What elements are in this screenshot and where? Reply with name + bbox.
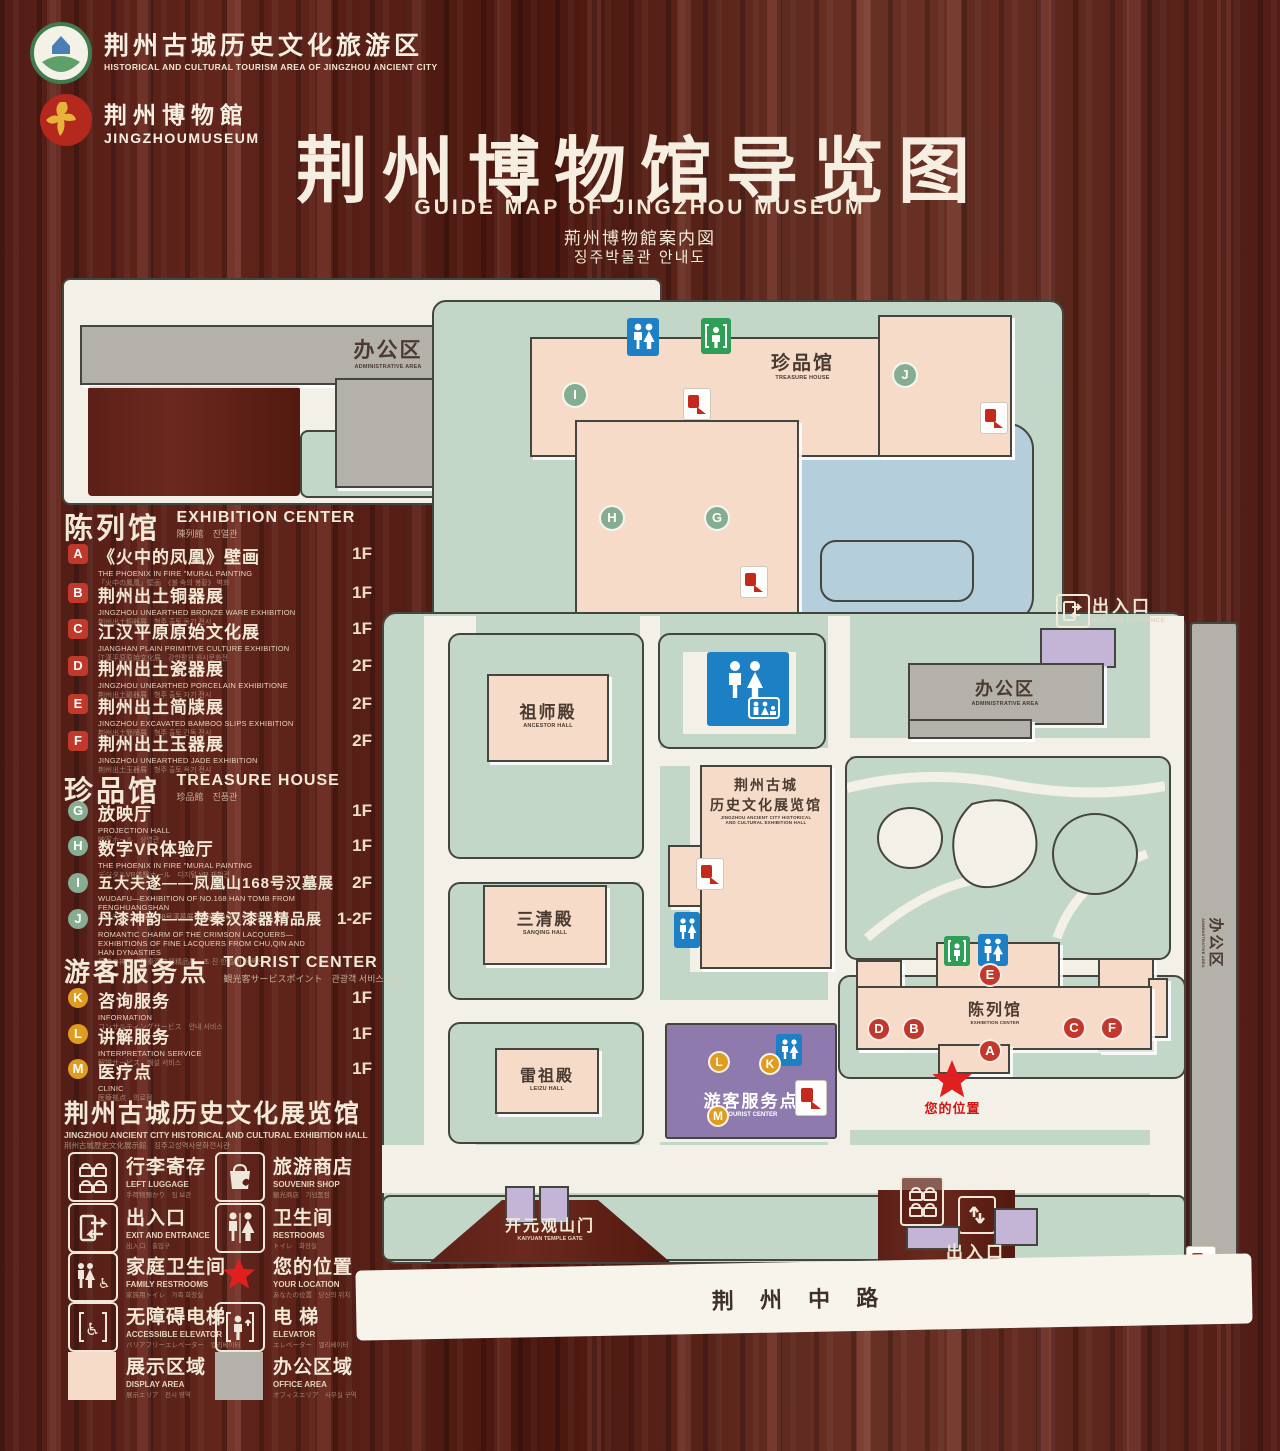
legend-icon-left-luggage: 行李寄存 LEFT LUGGAGE 手荷物預かり 짐 보관 — [68, 1152, 218, 1202]
item-title: 丹漆神韵——楚秦汉漆器精品展 — [98, 908, 320, 929]
elevator-icon — [944, 936, 970, 966]
legend-item-l: L 讲解服务 INTERPRETATION SERVICE 解説サービス 해설 … — [64, 1023, 374, 1061]
label-gate: 开元观山门 KAIYUAN TEMPLE GATE — [470, 1212, 630, 1242]
family-restrooms-icon: ♿ — [68, 1252, 118, 1302]
item-title: 放映厅 — [98, 800, 320, 825]
souvenir-shop-icon — [215, 1152, 265, 1202]
tourism-area-name-en: HISTORICAL AND CULTURAL TOURISM AREA OF … — [104, 62, 438, 72]
item-floor: 2F — [322, 873, 372, 893]
icon-label-zh: 旅游商店 — [273, 1152, 368, 1179]
legend-hall-note: 荆州古城历史文化展览馆 JINGZHOU ANCIENT CITY HISTOR… — [64, 1094, 384, 1151]
building-ancestor-hall: 祖师殿 ANCESTOR HALL — [487, 674, 609, 762]
legend-item-b: B 荆州出土铜器展 JINGZHOU UNEARTHED BRONZE WARE… — [64, 582, 374, 620]
icon-label-sub: 家族用トイレ 가족 화장실 — [126, 1289, 221, 1299]
icon-label-zh: 卫生间 — [273, 1203, 368, 1230]
your-location-star-icon — [221, 1256, 257, 1292]
item-badge: A — [68, 544, 88, 564]
item-badge: G — [68, 801, 88, 821]
legend-icon-souvenir-shop: 旅游商店 SOUVENIR SHOP 観光商店 기념품점 — [215, 1152, 365, 1202]
label-admin-right-en: ADMINISTRATIVE AREA — [935, 701, 1075, 707]
display-area-swatch — [68, 1352, 116, 1400]
legend-item-d: D 荆州出土瓷器展 JINGZHOU UNEARTHED PORCELAIN E… — [64, 655, 374, 693]
item-title: 荆州出土铜器展 — [98, 582, 320, 607]
gate-building — [1040, 628, 1116, 668]
icon-label-en: YOUR LOCATION — [273, 1280, 368, 1289]
museum-emblem-icon — [38, 92, 94, 148]
your-location-star — [930, 1058, 974, 1100]
label-gate-en: KAIYUAN TEMPLE GATE — [470, 1236, 630, 1242]
item-en: JINGZHOU EXCAVATED BAMBOO SLIPS EXHIBITI… — [98, 719, 320, 728]
escalator-icon — [795, 1080, 827, 1116]
item-title: 咨询服务 — [98, 987, 320, 1012]
left-luggage-icon — [900, 1176, 944, 1226]
section-subtitle: 観光客サービスポイント 관광객 서비스 지점 — [223, 972, 402, 985]
item-floor: 2F — [322, 656, 372, 676]
section-title-en: TOURIST CENTER — [223, 954, 402, 972]
building-leizu-hall: 雷祖殿 LEIZU HALL — [495, 1048, 599, 1114]
museum-logo — [38, 92, 94, 148]
item-floor: 1F — [322, 544, 372, 564]
item-floor: 1F — [322, 801, 372, 821]
section-title-en: EXHIBITION CENTER — [176, 509, 355, 527]
map-badge-k: K — [759, 1053, 781, 1075]
icon-label-sub: トイレ 화장실 — [273, 1240, 368, 1250]
page-subtitle-en: GUIDE MAP OF JINGZHOU MUSEUM — [280, 196, 1000, 220]
office-area-swatch — [215, 1352, 263, 1400]
legend-item-h: H 数字VR体验厅 THE PHOENIX IN FIRE "MURAL PAI… — [64, 835, 374, 873]
map-badge-c: C — [1062, 1016, 1086, 1040]
icon-label-zh: 展示区域 — [126, 1352, 221, 1379]
restrooms-icon — [215, 1203, 265, 1253]
item-badge: D — [68, 656, 88, 676]
escalator-icon — [980, 402, 1008, 434]
icon-label-zh: 行李寄存 — [126, 1152, 221, 1179]
item-badge: J — [68, 909, 88, 929]
map-badge-m: M — [707, 1105, 729, 1127]
item-floor: 2F — [322, 694, 372, 714]
icon-label-zh: 无障碍电梯 — [126, 1302, 221, 1329]
icon-label-en: RESTROOMS — [273, 1231, 368, 1240]
icon-label-sub: 観光商店 기념품점 — [273, 1189, 368, 1199]
icon-label-en: OFFICE AREA — [273, 1380, 368, 1389]
exit-entrance-icon — [1056, 594, 1090, 628]
item-badge: B — [68, 583, 88, 603]
legend-item-m: M 医疗点 CLINIC 医療拠点 의료점 1F — [64, 1058, 374, 1096]
legend-item-c: C 江汉平原原始文化展 JIANGHAN PLAIN PRIMITIVE CUL… — [64, 618, 374, 656]
tourism-area-name: 荆州古城历史文化旅游区 — [104, 26, 438, 62]
map-badge-l: L — [708, 1051, 730, 1073]
path — [448, 858, 660, 882]
map-badge-j: J — [892, 362, 918, 388]
escalator-icon — [740, 566, 768, 598]
icon-label-en: FAMILY RESTROOMS — [126, 1280, 221, 1289]
legend-icon-your-location: 您的位置 YOUR LOCATION あなたの位置 당신의 위치 — [215, 1252, 365, 1302]
item-badge: H — [68, 836, 88, 856]
item-en: JINGZHOU UNEARTHED BRONZE WARE EXHIBITIO… — [98, 608, 320, 617]
legend-item-e: E 荆州出土简牍展 JINGZHOU EXCAVATED BAMBOO SLIP… — [64, 693, 374, 731]
label-ancestor-en: ANCESTOR HALL — [489, 723, 607, 729]
map-badge-f: F — [1100, 1016, 1124, 1040]
icon-label-sub: オフィスエリア 사무실 구역 — [273, 1389, 368, 1399]
label-exit-right: 出入口 EXIT AND ENTRANCE — [1092, 592, 1212, 624]
restroom-icon — [627, 318, 659, 356]
label-leizu-en: LEIZU HALL — [497, 1086, 597, 1092]
legend-section-exhibition: 陈列馆 EXHIBITION CENTER 陳列館 진열관 — [64, 505, 355, 547]
item-en: INFORMATION — [98, 1013, 320, 1022]
exit-entrance-icon — [958, 1196, 996, 1234]
hall-note-en: JINGZHOU ANCIENT CITY HISTORICAL AND CUL… — [64, 1130, 384, 1140]
label-your-location: 您的位置 — [905, 1098, 1000, 1117]
map-badge-h: H — [599, 505, 625, 531]
item-title: 讲解服务 — [98, 1023, 320, 1048]
item-badge: C — [68, 619, 88, 639]
label-excenter-zh: 陈列馆 — [940, 996, 1050, 1020]
item-badge: E — [68, 694, 88, 714]
page-subtitle-ko: 징주박물관 안내도 — [280, 246, 1000, 267]
label-hallc-en2: AND CULTURAL EXHIBITION HALL — [702, 820, 830, 825]
item-floor: 1F — [322, 1024, 372, 1044]
label-hallc-zh1: 荆州古城 — [702, 775, 830, 795]
label-admin-strip-zh: 办公区 — [1207, 917, 1224, 968]
legend-icon-accessible-elevator: ♿ 无障碍电梯 ACCESSIBLE ELEVATOR バリアフリーエレベーター… — [68, 1302, 218, 1352]
item-floor: 1F — [322, 836, 372, 856]
hall-note-sub: 荆州古城歴史文化展示館 징주고성역사문화전시관 — [64, 1140, 384, 1151]
map-badge-e: E — [978, 963, 1002, 987]
item-floor: 1F — [322, 619, 372, 639]
label-ancestor-zh: 祖师殿 — [489, 698, 607, 723]
label-admin-strip-en: ADMINISTRATIVE AREA — [1201, 863, 1206, 1023]
legend-icon-restrooms: 卫生间 RESTROOMS トイレ 화장실 — [215, 1203, 365, 1253]
icon-label-en: EXIT AND ENTRANCE — [126, 1231, 221, 1240]
legend-item-k: K 咨询服务 INFORMATION コンサルティングサービス 안내 서비스 1… — [64, 987, 374, 1025]
elevator-icon — [701, 318, 731, 354]
path — [845, 1072, 1175, 1130]
item-badge: M — [68, 1059, 88, 1079]
escalator-icon — [683, 388, 711, 420]
icon-label-sub: 展示エリア 전시 영역 — [126, 1389, 221, 1399]
legend-item-j: J 丹漆神韵——楚秦汉漆器精品展 ROMANTIC CHARM OF THE C… — [64, 908, 374, 954]
item-title: 数字VR体验厅 — [98, 835, 320, 860]
building-sanqing-hall: 三清殿 SANQING HALL — [483, 885, 607, 965]
svg-text:♿: ♿ — [98, 1275, 111, 1291]
icon-label-sub: あなたの位置 당신의 위치 — [273, 1289, 368, 1299]
icon-label-en: ELEVATOR — [273, 1330, 368, 1339]
item-floor: 1F — [322, 988, 372, 1008]
icon-label-sub: 出入口 출입구 — [126, 1240, 221, 1250]
item-badge: F — [68, 731, 88, 751]
legend-item-i: I 五大夫遂——凤凰山168号汉墓展 WUDAFU—EXHIBITION OF … — [64, 872, 374, 910]
item-title: 五大夫遂——凤凰山168号汉墓展 — [98, 872, 320, 893]
accessible-elevator-icon: ♿ — [68, 1302, 118, 1352]
icon-label-en: ACCESSIBLE ELEVATOR — [126, 1330, 221, 1339]
legend-icon-elevator: 电 梯 ELEVATOR エレベーター 엘리베이터 — [215, 1302, 365, 1352]
item-floor: 1-2F — [322, 909, 372, 929]
label-exit-right-zh: 出入口 — [1092, 592, 1212, 617]
label-admin-right-zh: 办公区 — [935, 675, 1075, 701]
label-leizu-zh: 雷祖殿 — [497, 1062, 597, 1086]
label-admin-right: 办公区 ADMINISTRATIVE AREA — [935, 675, 1075, 707]
item-badge: K — [68, 988, 88, 1008]
item-en: JINGZHOU UNEARTHED PORCELAIN EXHIBITIONE — [98, 681, 320, 690]
map-badge-b: B — [902, 1017, 926, 1041]
map-badge-a: A — [978, 1039, 1002, 1063]
icon-label-en: LEFT LUGGAGE — [126, 1180, 221, 1189]
section-subtitle: 陳列館 진열관 — [176, 527, 355, 540]
escalator-icon — [696, 858, 724, 890]
label-road: 荆 州 中 路 — [670, 1280, 931, 1317]
item-en: PROJECTION HALL — [98, 826, 320, 835]
label-gate-zh: 开元观山门 — [470, 1212, 630, 1236]
svg-text:♿: ♿ — [85, 1320, 100, 1339]
label-treasure-en: TREASURE HOUSE — [755, 375, 850, 381]
restroom-icon — [674, 912, 700, 948]
tourism-area-logo — [30, 22, 92, 84]
item-en: CLINIC — [98, 1084, 320, 1093]
item-title: 江汉平原原始文化展 — [98, 618, 320, 643]
museum-name-en: JINGZHOUMUSEUM — [104, 130, 260, 146]
icon-label-zh: 办公区域 — [273, 1352, 368, 1379]
label-treasure: 珍品馆 TREASURE HOUSE — [755, 348, 850, 381]
lake-tail — [820, 540, 974, 602]
tourism-area-emblem-icon — [30, 22, 92, 84]
item-title: 荆州出土简牍展 — [98, 693, 320, 718]
label-excenter: 陈列馆 EXHIBITION CENTER — [940, 996, 1050, 1025]
icon-label-sub: バリアフリーエレベーター 엘리베이터 — [126, 1339, 221, 1349]
label-admin-strip: 办公区 ADMINISTRATIVE AREA — [1201, 863, 1227, 1023]
legend-icon-office-area: 办公区域 OFFICE AREA オフィスエリア 사무실 구역 — [215, 1352, 365, 1402]
legend-icon-display-area: 展示区域 DISPLAY AREA 展示エリア 전시 영역 — [68, 1352, 218, 1402]
item-floor: 1F — [322, 583, 372, 603]
hall-note-zh: 荆州古城历史文化展览馆 — [64, 1094, 384, 1130]
path — [448, 998, 660, 1022]
item-title: 《火中的凤凰》壁画 — [98, 543, 320, 568]
label-excenter-en: EXHIBITION CENTER — [940, 1020, 1050, 1025]
building-admin-right-step — [908, 719, 1032, 739]
elevator-icon — [215, 1302, 265, 1352]
path — [850, 738, 1166, 756]
legend-item-f: F 荆州出土玉器展 JINGZHOU UNEARTHED JADE EXHIBI… — [64, 730, 374, 768]
legend-section-tourist: 游客服务点 TOURIST CENTER 観光客サービスポイント 관광객 서비스… — [64, 952, 403, 989]
garden — [845, 756, 1171, 960]
icon-label-sub: エレベーター 엘리베이터 — [273, 1339, 368, 1349]
item-badge: I — [68, 873, 88, 893]
item-en: JIANGHAN PLAIN PRIMITIVE CULTURE EXHIBIT… — [98, 644, 320, 653]
family-restroom-sign — [707, 652, 789, 726]
label-treasure-zh: 珍品馆 — [755, 348, 850, 375]
item-en: THE PHOENIX IN FIRE "MURAL PAINTING — [98, 569, 320, 578]
item-en: JINGZHOU UNEARTHED JADE EXHIBITION — [98, 756, 320, 765]
icon-label-sub: 手荷物預かり 짐 보관 — [126, 1189, 221, 1199]
item-floor: 2F — [322, 731, 372, 751]
icon-label-zh: 家庭卫生间 — [126, 1252, 221, 1279]
map-badge-d: D — [867, 1017, 891, 1041]
icon-label-en: DISPLAY AREA — [126, 1380, 221, 1389]
section-title-zh: 游客服务点 — [64, 957, 209, 987]
item-en: INTERPRETATION SERVICE — [98, 1049, 320, 1058]
section-title-en: TREASURE HOUSE — [176, 772, 339, 790]
legend-icon-exit: 出入口 EXIT AND ENTRANCE 出入口 출입구 — [68, 1203, 218, 1253]
item-title: 荆州出土瓷器展 — [98, 655, 320, 680]
legend-item-a: A 《火中的凤凰》壁画 THE PHOENIX IN FIRE "MURAL P… — [64, 543, 374, 581]
map-badge-g: G — [704, 505, 730, 531]
item-title: 医疗点 — [98, 1058, 320, 1083]
label-sanqing-zh: 三清殿 — [485, 905, 605, 930]
label-sanqing-en: SANQING HALL — [485, 930, 605, 936]
section-title-zh: 陈列馆 — [64, 513, 160, 545]
icon-label-en: SOUVENIR SHOP — [273, 1180, 368, 1189]
item-en: THE PHOENIX IN FIRE "MURAL PAINTING — [98, 861, 320, 870]
museum-name: 荆州博物館 — [104, 96, 260, 130]
item-title: 荆州出土玉器展 — [98, 730, 320, 755]
map-cutout — [88, 386, 300, 496]
path-walkway — [382, 1145, 1180, 1193]
legend-item-g: G 放映厅 PROJECTION HALL 映写ホール 상영관 1F — [64, 800, 374, 838]
item-floor: 1F — [322, 1059, 372, 1079]
legend-icon-family-restrooms: ♿ 家庭卫生间 FAMILY RESTROOMS 家族用トイレ 가족 화장실 — [68, 1252, 218, 1302]
label-hallc-zh2: 历史文化展览馆 — [702, 795, 830, 815]
exit-entrance-icon — [68, 1203, 118, 1253]
left-luggage-icon — [68, 1152, 118, 1202]
restroom-icon — [978, 934, 1008, 966]
item-badge: L — [68, 1024, 88, 1044]
icon-label-zh: 您的位置 — [273, 1252, 368, 1279]
map-badge-i: I — [562, 382, 588, 408]
icon-label-zh: 出入口 — [126, 1203, 221, 1230]
icon-label-zh: 电 梯 — [273, 1302, 368, 1329]
